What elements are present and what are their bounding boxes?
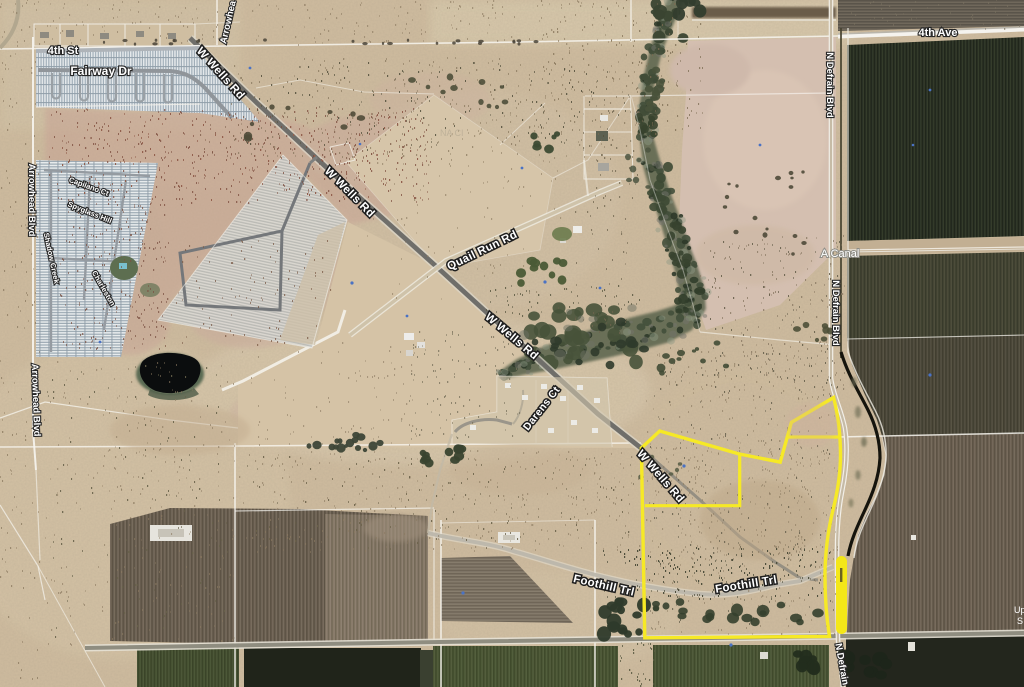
svg-text:4th Ave: 4th Ave — [919, 27, 958, 39]
svg-text:N Defrain Blvd: N Defrain Blvd — [830, 280, 841, 346]
svg-text:S: S — [1017, 616, 1023, 626]
svg-text:4th St: 4th St — [48, 45, 79, 57]
svg-text:Up: Up — [1014, 605, 1024, 615]
svg-text:N Defrain Blvd: N Defrain Blvd — [824, 52, 835, 118]
svg-text:Arrowhead Blvd: Arrowhead Blvd — [26, 164, 37, 237]
svg-text:Fairway Dr: Fairway Dr — [70, 64, 132, 78]
svg-text:A Canal: A Canal — [821, 248, 860, 260]
svg-text:NA CI: NA CI — [440, 128, 464, 138]
